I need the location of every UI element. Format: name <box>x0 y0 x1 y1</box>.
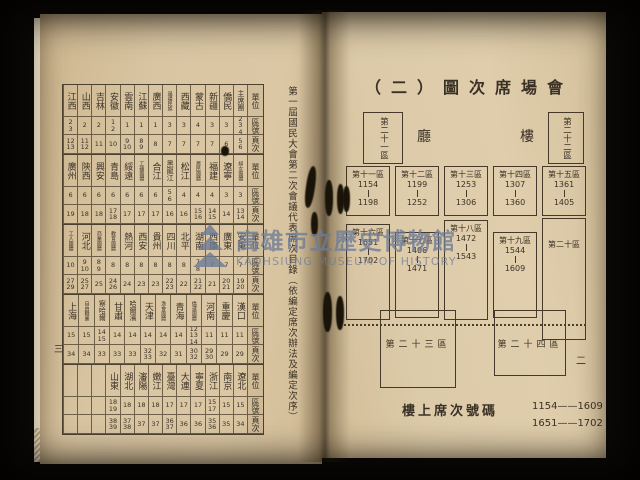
district-number-cell: 14 15 <box>94 327 109 345</box>
unit-cell: 瀋陽 <box>134 365 148 397</box>
seat-section-name: 第十六區 <box>352 227 384 238</box>
row-header-district: 區號 <box>247 257 263 275</box>
unit-cell: 山東 <box>105 365 119 397</box>
district-number-cell: 7 <box>205 257 219 275</box>
unit-cell: 綏遠 <box>120 155 134 187</box>
unit-cell: 南京 <box>219 365 233 397</box>
district-number-cell: 11 <box>201 327 216 345</box>
unit-cell: 熱河 <box>120 225 134 257</box>
seat-range-end: 1252 <box>407 198 427 207</box>
seat-section-name: 第十七區 <box>401 235 433 246</box>
district-number-cell: 14 <box>155 327 170 345</box>
page-number-cell: 15 16 <box>190 205 204 224</box>
table-band: 廣州陝西興安青島綏遠工礦團體合江黑龍江松江農民團體福建遼寧婦女團體單位66666… <box>62 154 264 224</box>
district-number-cell: 11 <box>232 327 247 345</box>
unit-cell: 工人團體 <box>63 225 77 257</box>
seat-range-start: 1472 <box>456 234 476 243</box>
page-number-cell: 16 <box>176 205 190 224</box>
range-tick <box>466 190 467 197</box>
district-number-cell <box>91 397 105 415</box>
row-header-unit: 單位 <box>247 155 263 187</box>
unit-cell: 甘肅 <box>109 295 124 327</box>
district-number-cell: 15 17 <box>205 397 219 415</box>
district-number-cell: 12 13 14 <box>186 327 201 345</box>
unit-cell: 雲南 <box>120 85 134 117</box>
seat-section-name: 第十五區 <box>548 169 580 180</box>
unit-cell: 江西 <box>63 85 77 117</box>
page-number-cell: 24 <box>120 275 134 294</box>
page-number-cell: 8 <box>148 135 162 154</box>
footer-caption: 樓上席次號碼 <box>402 400 498 419</box>
district-number-cell: 6 <box>91 187 105 205</box>
seat-range-end: 1306 <box>456 198 476 207</box>
page-number-cell: 19 20 <box>233 275 247 294</box>
unit-cell: 湖南 <box>190 225 204 257</box>
unit-cell: 遼北 <box>233 365 247 397</box>
unit-cell: 黑龍江 <box>162 155 176 187</box>
unit-cell: 哈爾濱 <box>124 295 139 327</box>
district-number-cell: 3 <box>233 187 247 205</box>
page-number-cell: 21 <box>205 275 219 294</box>
right-page-number: 二 <box>576 352 586 367</box>
district-number-cell: 3 <box>162 117 176 135</box>
row-header-page: 頁次 <box>247 275 263 294</box>
page-number-cell: 16 <box>162 205 176 224</box>
district-number-cell <box>63 397 77 415</box>
unit-cell: 河南 <box>201 295 216 327</box>
section-24-box: 第二十四區 <box>494 310 566 376</box>
page-number-cell: 21 22 <box>190 275 204 294</box>
row-header-district: 區號 <box>247 187 263 205</box>
district-number-cell: 6 <box>134 187 148 205</box>
page-number-cell: 14 15 <box>205 205 219 224</box>
page-number-cell: 34 <box>233 415 247 434</box>
page-number-cell: 29 30 <box>201 345 216 364</box>
district-number-cell: 2 <box>91 117 105 135</box>
district-number-cell: 18 <box>134 397 148 415</box>
unit-cell: 青島 <box>105 155 119 187</box>
row-header-page: 頁次 <box>247 135 263 154</box>
seat-section-box: 第十七區14061471 <box>395 232 439 318</box>
unit-cell: 農民團體 <box>190 155 204 187</box>
district-number-cell: 15 <box>63 327 78 345</box>
section-23-label: 第二十三區 <box>381 337 455 350</box>
page-number-cell: 24 26 <box>105 275 119 294</box>
seat-section-box: 第十一區11541198 <box>346 166 390 216</box>
district-number-cell: 15 <box>219 397 233 415</box>
district-number-cell: 6 <box>148 187 162 205</box>
unit-cell <box>63 365 77 397</box>
seat-section-box: 第十三區12531306 <box>444 166 488 216</box>
section-24-label: 第二十四區 <box>495 337 565 350</box>
page-number-cell: 13 14 <box>233 205 247 224</box>
district-number-cell: 2 3 <box>63 117 77 135</box>
page-number-cell: 25 27 <box>77 275 91 294</box>
district-number-cell: 1 <box>148 117 162 135</box>
unit-cell: 漢口 <box>232 295 247 327</box>
unit-cell: 婦女團體 <box>233 155 247 187</box>
unit-cell: 浙江 <box>205 365 219 397</box>
page-number-cell: 7 <box>162 135 176 154</box>
range-tick <box>417 190 418 197</box>
unit-cell: 僑民 <box>219 85 233 117</box>
seat-row-upper: 第十一區11541198第十二區11991252第十三區12531306第十四區… <box>346 166 586 216</box>
page-number-cell: 22 23 <box>162 275 176 294</box>
unit-cell: 察哈爾 <box>94 295 109 327</box>
row-header-district: 區號 <box>247 397 263 415</box>
range-tick <box>368 190 369 197</box>
right-page: （二）圖次席場會 第二十一區 廳 樓 第二十二區 第十一區11541198第十二… <box>322 12 606 458</box>
row-header-page: 頁次 <box>247 205 263 224</box>
district-number-cell: 14 <box>124 327 139 345</box>
seat-range-start: 1361 <box>554 180 574 189</box>
district-number-cell: 4 <box>176 187 190 205</box>
table-side-caption: 第一屆國民大會第二次會議代表席次目錄（依編定席次辦法及編定次序） <box>268 86 298 430</box>
page-number-cell: 17 <box>134 205 148 224</box>
page-number-cell: 9 10 <box>120 135 134 154</box>
unit-cell: 貴州 <box>148 225 162 257</box>
seat-section-name: 第二十區 <box>548 239 580 250</box>
district-number-cell: 4 <box>190 117 204 135</box>
page-number-cell <box>77 415 91 434</box>
table-band: 上海自由職業察哈爾甘肅哈爾濱天津漁會團體青海僑選團體河南重慶漢口單位151514… <box>62 294 264 364</box>
page-number-cell: 30 32 <box>186 345 201 364</box>
district-number-cell: 17 <box>162 397 176 415</box>
seat-section-box: 第十九區15441609 <box>493 232 537 318</box>
district-number-cell: 17 <box>190 397 204 415</box>
district-number-cell: 9 10 <box>77 257 91 275</box>
seat-range-start: 1154 <box>358 180 378 189</box>
unit-cell: 大連 <box>176 365 190 397</box>
seat-section-name: 第十八區 <box>450 223 482 234</box>
district-number-cell: 18 19 <box>105 397 119 415</box>
unit-cell: 興安 <box>91 155 105 187</box>
seat-range-start: 1253 <box>456 180 476 189</box>
unit-cell: 天津 <box>140 295 155 327</box>
page-number-cell: 27 29 <box>63 275 77 294</box>
district-number-cell: 4 <box>190 187 204 205</box>
unit-cell: 四川 <box>162 225 176 257</box>
row-header-page: 頁次 <box>247 345 263 364</box>
district-number-cell: 15 <box>78 327 93 345</box>
district-number-cell: 3 <box>219 187 233 205</box>
district-number-cell: 1 2 <box>105 117 119 135</box>
unit-cell: 廣西 <box>148 85 162 117</box>
district-number-cell: 6 <box>105 187 119 205</box>
staple-bottom-left <box>323 292 332 332</box>
unit-cell: 嫩江 <box>148 365 162 397</box>
page-number-cell: 19 <box>63 205 77 224</box>
district-number-cell: 1 <box>134 117 148 135</box>
table-band: 工人團體河北商業團體教育團體熱河西安貴州四川北平湖南西康廣東安東單位109 10… <box>62 224 264 294</box>
district-number-cell: 6 <box>77 187 91 205</box>
page-number-cell: 11 <box>91 135 105 154</box>
seat-range-start: 1307 <box>505 180 525 189</box>
district-number-cell: 11 <box>216 327 231 345</box>
unit-cell: 山西 <box>77 85 91 117</box>
row-header-unit: 單位 <box>247 225 263 257</box>
page-number-cell: 37 <box>148 415 162 434</box>
range-tick <box>368 248 369 255</box>
unit-cell <box>77 365 91 397</box>
seat-section-box: 第十六區16511702 <box>346 224 390 320</box>
book-gutter-shadow <box>298 10 350 462</box>
seat-range-start: 1406 <box>407 246 427 255</box>
section-21-box: 第二十一區 <box>363 112 403 164</box>
row-header-district: 區號 <box>247 117 263 135</box>
unit-cell: 河北 <box>77 225 91 257</box>
page-number-cell: 8 9 <box>134 135 148 154</box>
page-number-cell: 10 <box>105 135 119 154</box>
seat-section-name: 第十二區 <box>401 169 433 180</box>
range-tick <box>515 190 516 197</box>
unit-cell: 西安 <box>134 225 148 257</box>
row-header-unit: 單位 <box>247 295 263 327</box>
page-number-cell <box>63 415 77 434</box>
district-number-cell: 8 <box>176 257 190 275</box>
unit-cell <box>91 365 105 397</box>
unit-cell: 松江 <box>176 155 190 187</box>
page-number-cell: 37 38 <box>120 415 134 434</box>
seat-range-start: 1544 <box>505 246 525 255</box>
district-number-cell: 5 6 <box>162 187 176 205</box>
page-number-cell: 29 <box>216 345 231 364</box>
page-number-cell: 31 <box>170 345 185 364</box>
diagram-title: （二）圖次席場會 <box>322 74 606 98</box>
left-page: 三 江西山西吉林安徽雲南江蘇廣西邊疆民族西藏蒙古新疆僑民主席團單位2 3221 … <box>40 14 322 464</box>
range-tick <box>564 190 565 197</box>
unit-cell: 西康 <box>205 225 219 257</box>
footer-seat-ranges: 1154——1609 1651——1702 <box>532 398 603 432</box>
unit-cell: 吉林 <box>91 85 105 117</box>
district-number-cell: 8 <box>148 257 162 275</box>
district-number-cell: 2 <box>77 117 91 135</box>
seat-range-end: 1543 <box>456 252 476 261</box>
unit-cell: 安東 <box>233 225 247 257</box>
book-scan-photo: 三 江西山西吉林安徽雲南江蘇廣西邊疆民族西藏蒙古新疆僑民主席團單位2 3221 … <box>0 0 640 480</box>
district-number-cell: 6 <box>120 187 134 205</box>
page-number-cell: 36 37 <box>162 415 176 434</box>
ink-smudge <box>311 212 318 236</box>
unit-cell: 工礦團體 <box>134 155 148 187</box>
page-number-cell: 17 <box>120 205 134 224</box>
unit-cell: 自由職業 <box>78 295 93 327</box>
seat-range-end: 1405 <box>554 198 574 207</box>
district-number-cell: 7 <box>219 257 233 275</box>
page-number-cell: 29 <box>232 345 247 364</box>
district-number-cell: 18 <box>120 397 134 415</box>
unit-cell: 北平 <box>176 225 190 257</box>
unit-cell: 福建 <box>205 155 219 187</box>
page-number-cell: 37 <box>134 415 148 434</box>
page-number-cell: 33 <box>94 345 109 364</box>
page-number-cell: 32 <box>155 345 170 364</box>
row-header-page: 頁次 <box>247 415 263 434</box>
page-number-cell: 18 <box>91 205 105 224</box>
unit-cell: 僑選團體 <box>186 295 201 327</box>
unit-cell: 合江 <box>148 155 162 187</box>
page-number-cell: 5 6 <box>233 135 247 154</box>
seat-section-box: 第十五區13611405 <box>542 166 586 216</box>
staple-top-left <box>325 180 333 216</box>
seat-section-name: 第十四區 <box>499 169 531 180</box>
unit-cell: 新疆 <box>205 85 219 117</box>
page-number-cell: 36 <box>176 415 190 434</box>
seat-range-end: 1471 <box>407 264 427 273</box>
district-number-cell: 8 <box>105 257 119 275</box>
page-number-cell: 35 36 <box>205 415 219 434</box>
table-band: 山東湖北瀋陽嫩江臺灣大連寧夏浙江南京遼北單位18 191818181717171… <box>62 364 264 435</box>
seat-range-start: 1651 <box>358 238 378 247</box>
page-number-cell <box>91 415 105 434</box>
section-23-box: 第二十三區 <box>380 310 456 388</box>
unit-cell: 商業團體 <box>91 225 105 257</box>
district-number-cell: 8 9 <box>91 257 105 275</box>
unit-cell: 漁會團體 <box>155 295 170 327</box>
seat-section-name: 第十三區 <box>450 169 482 180</box>
staple-bottom-right <box>336 296 344 330</box>
page-number-cell: 23 <box>148 275 162 294</box>
unit-cell: 蒙古 <box>190 85 204 117</box>
district-number-cell: 17 <box>176 397 190 415</box>
unit-cell: 安徽 <box>105 85 119 117</box>
unit-cell: 江蘇 <box>134 85 148 117</box>
unit-cell: 西藏 <box>176 85 190 117</box>
district-number-cell: 7 <box>233 257 247 275</box>
district-number-cell: 3 <box>176 117 190 135</box>
unit-cell: 主席團 <box>233 85 247 117</box>
district-number-cell: 8 <box>162 257 176 275</box>
page-number-cell: 12 13 <box>63 135 77 154</box>
seating-table: 江西山西吉林安徽雲南江蘇廣西邊疆民族西藏蒙古新疆僑民主席團單位2 3221 21… <box>62 84 264 435</box>
seat-section-box: 第十四區13071360 <box>493 166 537 216</box>
page-number-cell: 22 <box>176 275 190 294</box>
page-number-cell: 38 39 <box>105 415 119 434</box>
unit-cell: 重慶 <box>216 295 231 327</box>
district-number-cell: 7 8 <box>190 257 204 275</box>
page-number-cell: 7 <box>176 135 190 154</box>
ink-smudge <box>221 146 229 156</box>
page-number-cell: 25 <box>91 275 105 294</box>
range-tick <box>466 244 467 251</box>
ink-smudge <box>343 186 350 212</box>
page-number-cell: 32 33 <box>140 345 155 364</box>
seat-range-end: 1198 <box>358 198 378 207</box>
page-number-cell: 17 <box>148 205 162 224</box>
page-number-cell: 33 <box>109 345 124 364</box>
hall-label-left: 廳 <box>417 126 431 146</box>
district-number-cell: 1 <box>120 117 134 135</box>
district-number-cell: 4 <box>205 187 219 205</box>
page-number-cell: 11 12 <box>77 135 91 154</box>
unit-cell: 寧夏 <box>190 365 204 397</box>
district-number-cell: 14 <box>109 327 124 345</box>
range-tick <box>417 256 418 263</box>
seat-range-end: 1360 <box>505 198 525 207</box>
district-number-cell: 8 <box>120 257 134 275</box>
seat-section-name: 第十九區 <box>499 235 531 246</box>
hall-label-right: 樓 <box>520 126 534 146</box>
district-number-cell: 2 3 4 <box>233 117 247 135</box>
unit-cell: 湖北 <box>120 365 134 397</box>
seat-range-end: 1609 <box>505 264 525 273</box>
unit-cell: 陝西 <box>77 155 91 187</box>
unit-cell: 邊疆民族 <box>162 85 176 117</box>
page-number-cell: 36 <box>190 415 204 434</box>
district-number-cell: 10 <box>63 257 77 275</box>
unit-cell: 廣州 <box>63 155 77 187</box>
district-number-cell: 8 <box>134 257 148 275</box>
page-number-cell: 14 <box>219 205 233 224</box>
district-number-cell: 6 <box>63 187 77 205</box>
page-number-cell: 7 <box>190 135 204 154</box>
page-number-cell: 20 21 <box>219 275 233 294</box>
unit-cell: 上海 <box>63 295 78 327</box>
row-header-district: 區號 <box>247 327 263 345</box>
district-number-cell: 3 <box>219 117 233 135</box>
page-number-cell: 23 <box>134 275 148 294</box>
seat-range-end: 1702 <box>358 256 378 265</box>
page-number-cell: 7 <box>205 135 219 154</box>
row-header-unit: 單位 <box>247 85 263 117</box>
unit-cell: 臺灣 <box>162 365 176 397</box>
unit-cell: 廣東 <box>219 225 233 257</box>
seat-section-box: 第十八區14721543 <box>444 220 488 320</box>
seat-section-box: 第十二區11991252 <box>395 166 439 216</box>
page-number-cell: 17 18 <box>105 205 119 224</box>
page-number-cell: 18 <box>77 205 91 224</box>
row-header-unit: 單位 <box>247 365 263 397</box>
unit-cell: 青海 <box>170 295 185 327</box>
district-number-cell: 18 <box>148 397 162 415</box>
page-number-cell: 35 <box>219 415 233 434</box>
range-tick <box>515 256 516 263</box>
district-number-cell: 14 <box>170 327 185 345</box>
district-number-cell <box>77 397 91 415</box>
seat-range-start: 1199 <box>407 180 427 189</box>
seat-section-name: 第十一區 <box>352 169 384 180</box>
section-22-box: 第二十二區 <box>548 112 584 164</box>
page-number-cell: 33 <box>124 345 139 364</box>
unit-cell: 遼寧 <box>219 155 233 187</box>
page-number-cell: 34 <box>78 345 93 364</box>
district-number-cell: 15 <box>233 397 247 415</box>
unit-cell: 教育團體 <box>105 225 119 257</box>
district-number-cell: 14 <box>140 327 155 345</box>
page-number-cell: 34 <box>63 345 78 364</box>
table-band: 江西山西吉林安徽雲南江蘇廣西邊疆民族西藏蒙古新疆僑民主席團單位2 3221 21… <box>62 84 264 154</box>
district-number-cell: 3 <box>205 117 219 135</box>
